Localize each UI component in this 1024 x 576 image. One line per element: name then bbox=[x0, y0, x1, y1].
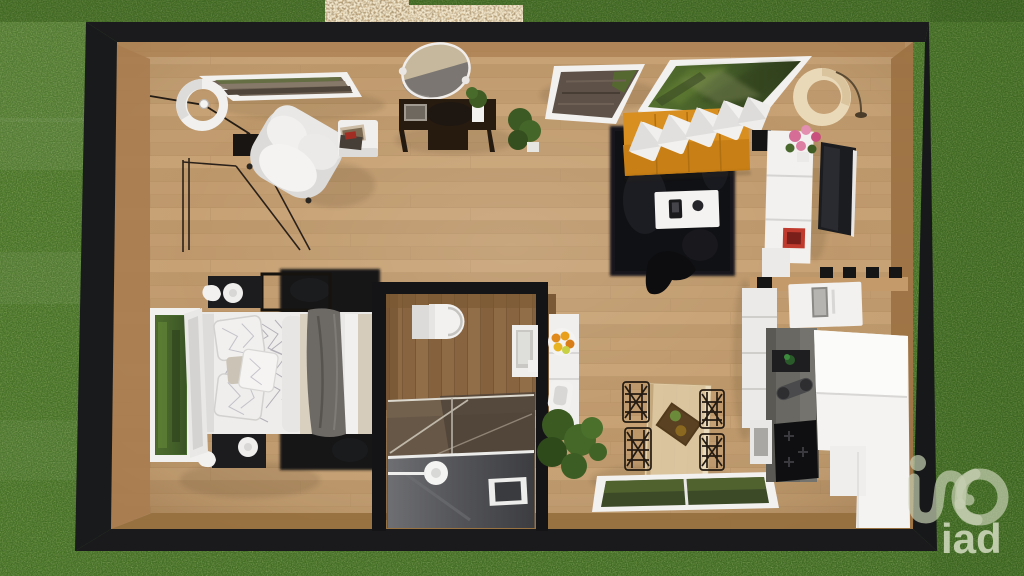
svg-text:iad: iad bbox=[941, 515, 1002, 562]
